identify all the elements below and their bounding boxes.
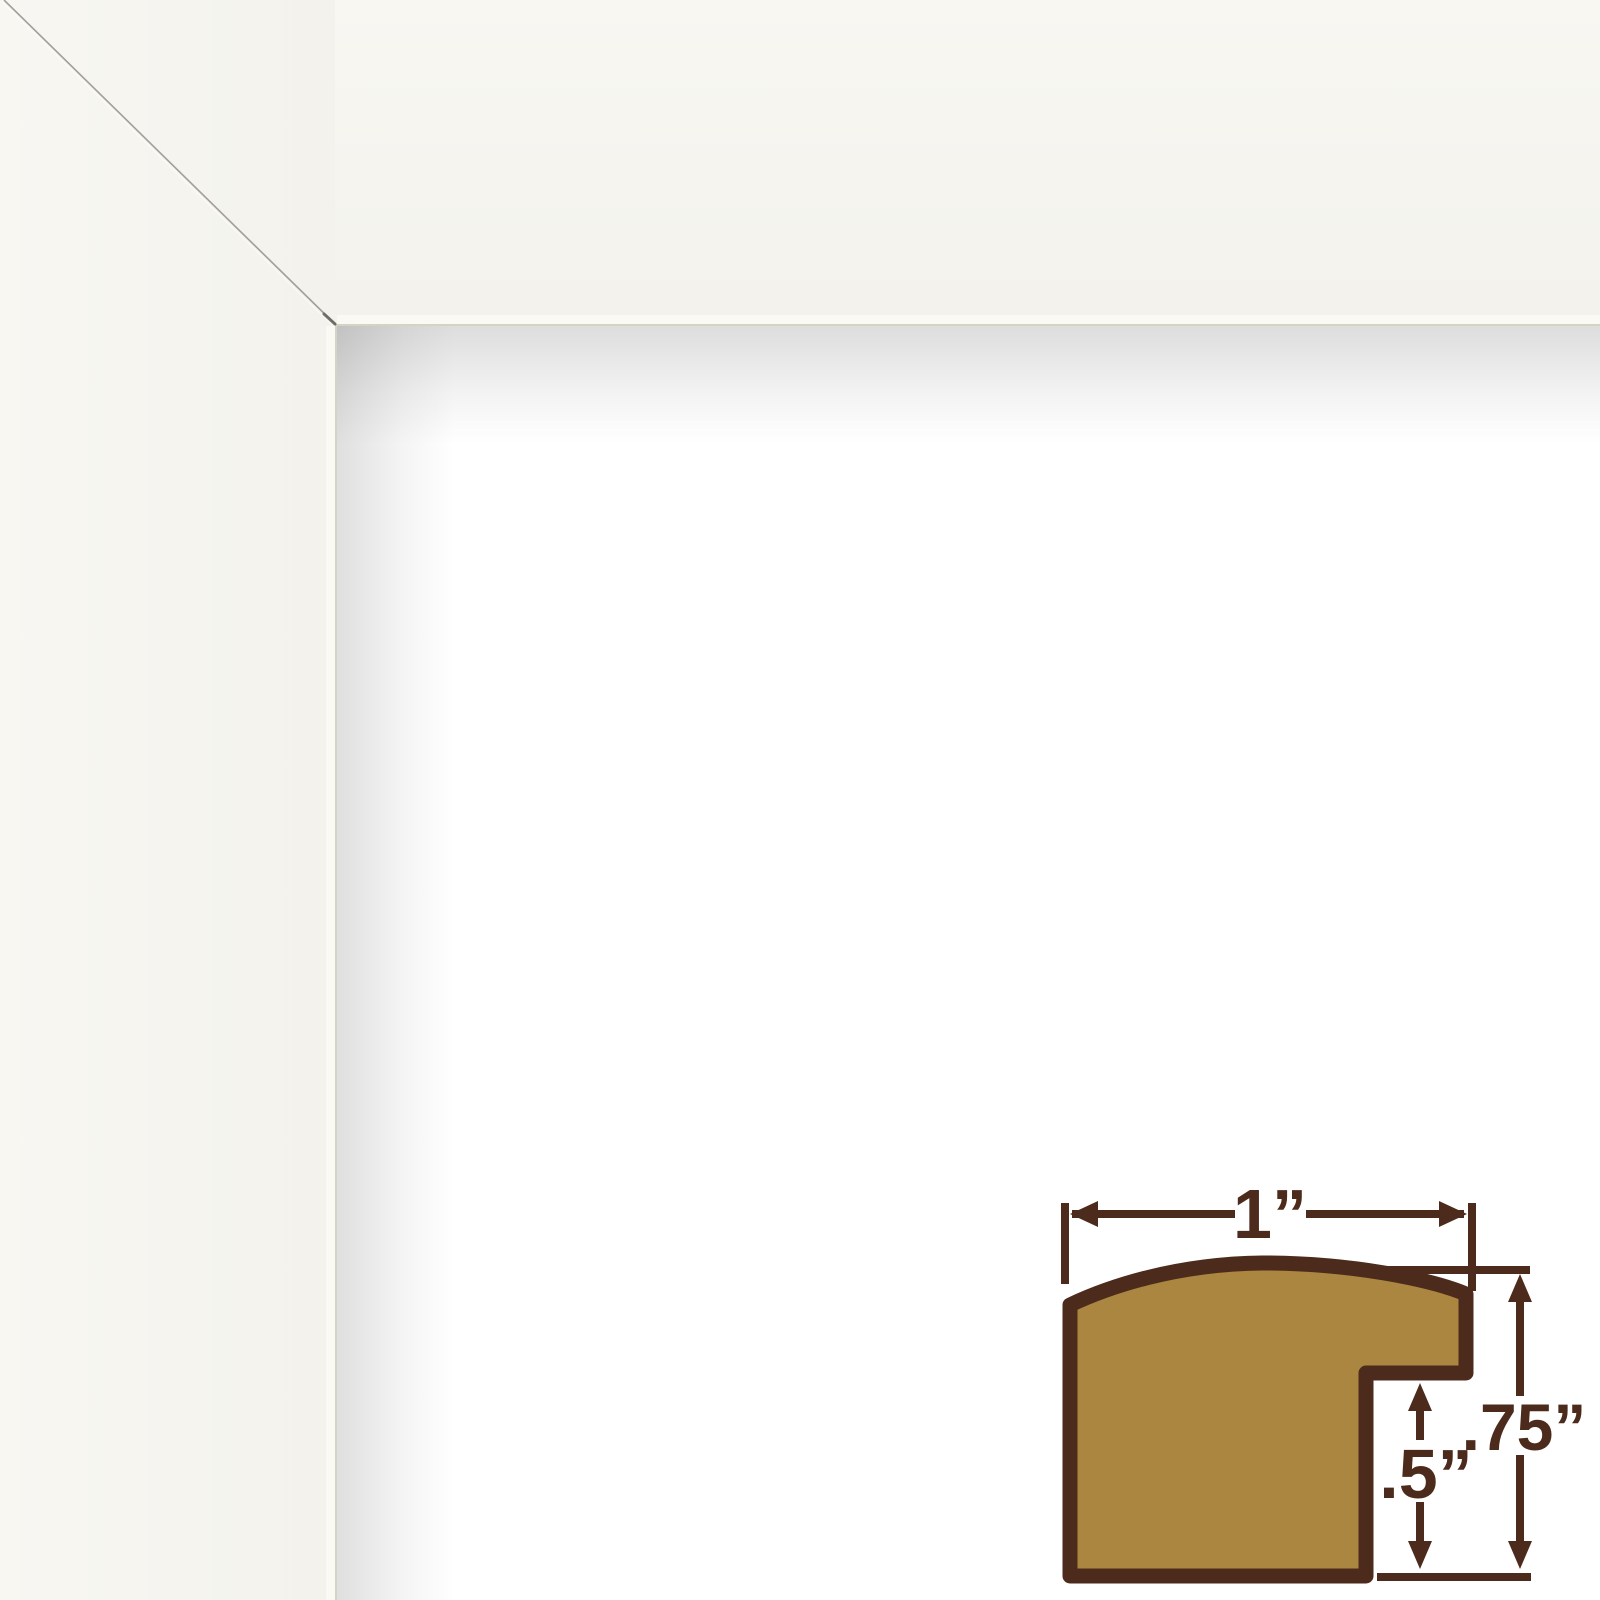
rabbet-arrowhead-up <box>1408 1383 1432 1411</box>
height-label: .75” <box>1462 1390 1587 1464</box>
width-arrowhead-right <box>1439 1201 1467 1227</box>
height-arrowhead-down <box>1508 1541 1532 1569</box>
height-arrowhead-up <box>1508 1274 1532 1302</box>
frame-left-rail <box>0 0 335 1600</box>
frame-inner-lip-highlight-left <box>326 326 335 1600</box>
opening-shadow-top <box>337 326 1600 444</box>
moulding-cross-section <box>1070 1263 1466 1576</box>
opening-shadow-left <box>337 326 455 1600</box>
frame-inner-lip-highlight-top <box>337 315 1600 324</box>
rabbet-depth-label: .5” <box>1379 1435 1472 1513</box>
rabbet-arrowhead-down <box>1408 1541 1432 1569</box>
width-arrowhead-left <box>1070 1201 1098 1227</box>
width-label: 1” <box>1233 1175 1307 1253</box>
profile-dimension-diagram: 1” .75” .5” <box>1065 1175 1586 1577</box>
